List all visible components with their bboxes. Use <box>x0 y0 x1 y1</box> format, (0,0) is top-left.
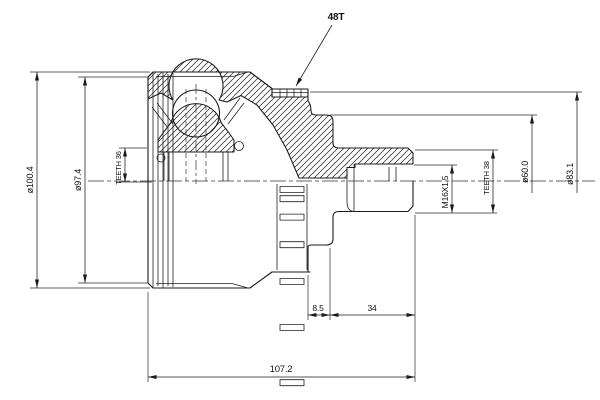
circlip-section <box>235 142 244 151</box>
dim-inner-spline-teeth: TEETH 36 <box>114 148 152 185</box>
dim-stub-length: 34 <box>330 215 415 382</box>
dim-ring-groove-width-label: 8.5 <box>312 303 324 313</box>
callout-tone-ring-teeth-label: 48T <box>328 12 345 23</box>
dim-inner-spline-teeth-label: TEETH 36 <box>114 151 123 184</box>
cv-joint-technical-drawing: ø100.4 ø97.4 TEETH 36 48T M16X1.5 TEETH … <box>0 0 600 400</box>
dim-boot-groove-diameter-label: ø97.4 <box>73 169 83 191</box>
stub-shaft <box>308 164 413 272</box>
drawing-svg: ø100.4 ø97.4 TEETH 36 48T M16X1.5 TEETH … <box>0 0 600 400</box>
dim-stub-spline-teeth-label: TEETH 38 <box>482 161 491 194</box>
dim-total-length-label: 107.2 <box>270 364 293 375</box>
dim-outer-diameter: ø100.4 <box>25 72 150 288</box>
tone-ring-section <box>272 89 308 97</box>
dim-outer-diameter-label: ø100.4 <box>25 166 35 193</box>
dim-boot-groove-diameter: ø97.4 <box>73 77 148 283</box>
dim-abs-ring-diameter-label: ø83.1 <box>565 163 575 185</box>
dim-ring-groove-width: 8.5 <box>308 248 330 320</box>
dim-stub-spline-teeth: TEETH 38 <box>415 150 498 213</box>
dim-shoulder-diameter-label: ø60.0 <box>520 161 530 183</box>
callout-tone-ring-teeth: 48T <box>296 12 344 86</box>
dim-stub-length-label: 34 <box>367 303 377 313</box>
dim-thread-spec-label: M16X1.5 <box>440 175 450 208</box>
bell-housing-outline <box>148 72 272 288</box>
